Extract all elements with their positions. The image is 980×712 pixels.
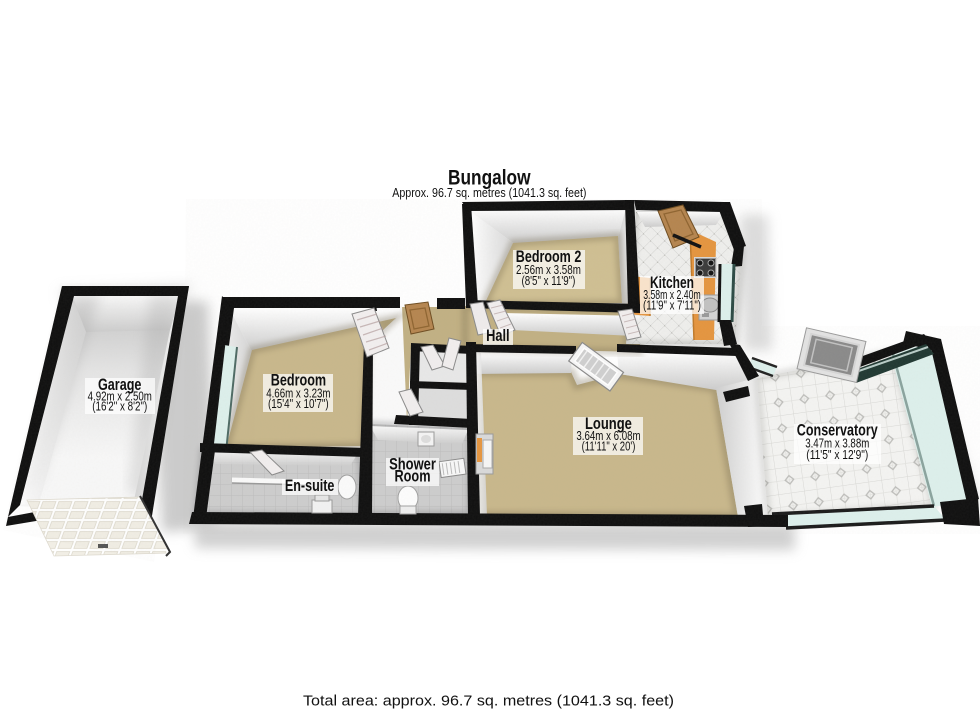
svg-text:(11'5" x 12'9"): (11'5" x 12'9") <box>806 448 868 462</box>
svg-text:Room: Room <box>395 467 431 486</box>
svg-text:(11'11" x 20'): (11'11" x 20') <box>582 440 636 454</box>
svg-text:Hall: Hall <box>486 326 510 345</box>
svg-text:(11'9" x 7'11"): (11'9" x 7'11") <box>643 299 701 313</box>
svg-text:En-suite: En-suite <box>285 476 335 495</box>
svg-text:Total area: approx. 96.7 sq. m: Total area: approx. 96.7 sq. metres (104… <box>303 693 674 710</box>
svg-text:(16'2" x 8'2"): (16'2" x 8'2") <box>92 400 147 414</box>
svg-text:(15'4" x 10'7"): (15'4" x 10'7") <box>268 397 329 411</box>
svg-text:(8'5" x 11'9"): (8'5" x 11'9") <box>522 274 576 288</box>
svg-text:Approx. 96.7 sq. metres (1041.: Approx. 96.7 sq. metres (1041.3 sq. feet… <box>392 186 586 200</box>
